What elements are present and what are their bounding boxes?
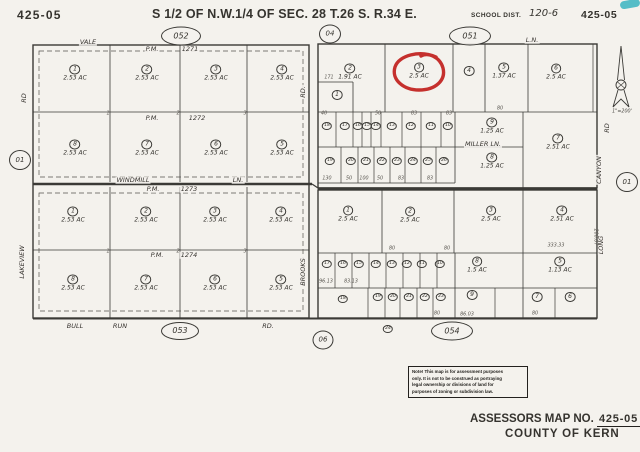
parcel-rb-13: 13 <box>387 260 397 268</box>
parcel-number: 6 <box>210 274 221 284</box>
parcel-rt-10: 10 <box>443 122 453 130</box>
parcel-acreage: 2.53 AC <box>269 218 293 224</box>
parcel-rb-5: 51.13 AC <box>548 256 572 273</box>
dimension-label: 200.07 <box>592 229 597 246</box>
note-line: only. It is not to be construed as portr… <box>412 376 524 383</box>
parcel-acreage: 1.5 AC <box>467 268 487 274</box>
ref-circle-051: 051 <box>449 27 491 46</box>
parcel-rb-1: 12.5 AC <box>338 205 358 222</box>
parcel-number: 21 <box>404 293 414 301</box>
parcel-rt-18: 18 <box>322 122 332 130</box>
parcel-number: 19 <box>325 157 335 165</box>
parcel-acreage: 2.5 AC <box>481 217 501 223</box>
parcel-number: 2 <box>142 64 153 74</box>
parcel-number: 2 <box>405 206 416 216</box>
parcel-number: 8 <box>472 256 483 266</box>
dimension-label: 171 <box>324 77 333 82</box>
parcel-lt-7: 72.53 AC <box>135 139 159 156</box>
parcel-number: 1 <box>343 205 354 215</box>
parcel-number: 5 <box>555 256 566 266</box>
parcel-acreage: 2.51 AC <box>546 145 570 151</box>
parcel-rt-1: 1 <box>332 90 343 100</box>
parcel-acreage: 2.53 AC <box>204 151 228 157</box>
dimension-label: 3 <box>243 113 246 118</box>
street-label-pm: P.M. <box>150 252 165 259</box>
parcel-number: 13 <box>387 122 397 130</box>
dimension-label: 83 <box>446 113 452 118</box>
parcel-number: 14 <box>371 122 381 130</box>
parcel-lb-2: 22.53 AC <box>134 206 158 223</box>
parcel-number: 1 <box>68 206 79 216</box>
street-label-rd: RD <box>21 92 28 104</box>
parcel-rb-10: 10 <box>435 260 445 268</box>
street-label-ln: LN. <box>232 177 245 184</box>
ref-circle-06: 06 <box>313 331 334 350</box>
parcel-rt-12: 12 <box>406 122 416 130</box>
parcel-number: 3 <box>414 62 425 72</box>
dimension-label: 83 <box>398 178 404 183</box>
parcel-acreage: 2.53 AC <box>134 218 158 224</box>
parcel-number: 11 <box>426 122 436 130</box>
parcel-acreage: 1.37 AC <box>492 74 516 80</box>
parcel-rt-23: 23 <box>392 157 402 165</box>
parcel-acreage: 1.25 AC <box>480 164 504 170</box>
parcel-acreage: 2.53 AC <box>269 286 293 292</box>
parcel-rt-21: 21 <box>361 157 371 165</box>
parcel-rb-19: 19 <box>373 293 383 301</box>
note-line: Note! This map is for assessment purpose… <box>412 369 524 376</box>
parcel-number: 21 <box>361 157 371 165</box>
parcel-rt-13: 13 <box>387 122 397 130</box>
parcel-number: 5 <box>499 62 510 72</box>
parcel-rt-17: 17 <box>340 122 350 130</box>
parcel-number: 20 <box>346 157 356 165</box>
parcel-rt-3: 32.5 AC <box>409 62 429 79</box>
parcel-number: 23 <box>436 293 446 301</box>
street-label-brooks: BROOKS <box>300 257 307 287</box>
parcel-number: 22 <box>420 293 430 301</box>
parcel-acreage: 2.51 AC <box>550 217 574 223</box>
parcel-rt-5: 51.37 AC <box>492 62 516 79</box>
dimension-label: 50 <box>346 178 352 183</box>
parcel-lb-1: 12.53 AC <box>61 206 85 223</box>
parcel-number: 16 <box>338 260 348 268</box>
parcel-acreage: 2.53 AC <box>63 151 87 157</box>
parcel-rt-20: 20 <box>346 157 356 165</box>
street-label-pm: P.M. <box>145 46 160 53</box>
parcel-lt-8: 82.53 AC <box>63 139 87 156</box>
parcel-rt-2: 21.91 AC <box>338 63 362 80</box>
parcel-lb-7: 72.53 AC <box>134 274 158 291</box>
parcel-acreage: 2.53 AC <box>203 286 227 292</box>
street-label-1273: 1273 <box>180 186 199 193</box>
parcel-rt-9: 91.25 AC <box>480 117 504 134</box>
street-label-windmill: WINDMILL <box>116 177 151 184</box>
parcel-rb-23: 23 <box>436 293 446 301</box>
assessors-map-label: ASSESSORS MAP NO. <box>470 413 594 425</box>
parcel-number: 14 <box>371 260 381 268</box>
parcel-acreage: 2.53 AC <box>63 76 87 82</box>
dimension-label: 83.13 <box>344 281 358 286</box>
parcel-acreage: 2.53 AC <box>134 286 158 292</box>
parcel-rb-8: 81.5 AC <box>467 256 487 273</box>
street-label-long: LONG <box>598 235 605 255</box>
dimension-label: 80 <box>497 108 503 113</box>
parcel-rb-15: 15 <box>354 260 364 268</box>
parcel-lt-4: 42.53 AC <box>270 64 294 81</box>
parcel-number: 4 <box>277 64 288 74</box>
dimension-label: 86.03 <box>460 314 474 319</box>
parcel-acreage: 2.5 AC <box>409 74 429 80</box>
parcel-number: 11 <box>417 260 427 268</box>
dimension-label: 1 <box>106 113 109 118</box>
parcel-number: 18 <box>338 295 348 303</box>
parcel-rt-25: 25 <box>423 157 433 165</box>
dimension-label: 3 <box>243 251 246 256</box>
parcel-number: 10 <box>435 260 445 268</box>
parcel-rb-22: 22 <box>420 293 430 301</box>
street-label-ln: L.N. <box>525 37 540 44</box>
street-label-millerln: MILLER LN. <box>464 141 502 148</box>
parcel-lt-2: 22.53 AC <box>135 64 159 81</box>
parcel-number: 19 <box>373 293 383 301</box>
dimension-label: 80 <box>434 313 440 318</box>
parcel-acreage: 2.53 AC <box>135 76 159 82</box>
parcel-acreage: 2.53 AC <box>61 286 85 292</box>
parcel-lb-5: 52.53 AC <box>269 274 293 291</box>
parcel-number: 17 <box>322 260 332 268</box>
dimension-label: 80 <box>444 248 450 253</box>
street-label-rd: RD <box>604 122 611 134</box>
parcel-number: 1 <box>70 64 81 74</box>
dimension-label: 2 <box>176 113 179 118</box>
parcel-acreage: 2.5 AC <box>400 218 420 224</box>
street-label-pm: P.M. <box>146 186 161 193</box>
parcel-number: 5 <box>276 274 287 284</box>
parcel-rb-4: 42.51 AC <box>550 205 574 222</box>
street-label-1274: 1274 <box>180 252 199 259</box>
parcel-number: 10 <box>443 122 453 130</box>
street-label-canyon: CANYON <box>596 155 603 185</box>
dimension-label: 96.13 <box>319 281 333 286</box>
parcel-rt-24: 24 <box>408 157 418 165</box>
parcel-number: 24 <box>408 157 418 165</box>
dimension-label: 333.33 <box>548 245 565 250</box>
parcel-number: 15 <box>354 260 364 268</box>
map-labels-layer: 05204051010105306054VALEP.M.1271P.M.1272… <box>0 0 640 452</box>
dimension-label: 40 <box>321 113 327 118</box>
parcel-number: 6 <box>565 292 576 302</box>
parcel-number: 4 <box>557 205 568 215</box>
street-label-pm: P.M. <box>145 115 160 122</box>
parcel-number: 2 <box>345 63 356 73</box>
ref-circle-054: 054 <box>431 322 473 341</box>
ref-circle-01: 01 <box>9 150 31 170</box>
parcel-number: 2 <box>141 206 152 216</box>
parcel-lb-4: 42.53 AC <box>269 206 293 223</box>
parcel-lb-8: 82.53 AC <box>61 274 85 291</box>
parcel-number: 4 <box>276 206 287 216</box>
parcel-number: 13 <box>387 260 397 268</box>
parcel-lt-1: 12.53 AC <box>63 64 87 81</box>
parcel-acreage: 2.53 AC <box>61 218 85 224</box>
parcel-rb-12: 12 <box>402 260 412 268</box>
parcel-rb-24: 24 <box>383 325 393 333</box>
assessor-map-scan: 425-05 S 1/2 OF N.W.1/4 OF SEC. 28 T.26 … <box>0 0 640 452</box>
parcel-rt-22: 22 <box>377 157 387 165</box>
parcel-rb-9: 9 <box>467 290 478 300</box>
parcel-number: 7 <box>553 133 564 143</box>
street-label-vale: VALE <box>79 39 97 46</box>
parcel-acreage: 1.13 AC <box>548 268 572 274</box>
county-label: COUNTY OF KERN <box>505 428 620 440</box>
parcel-number: 9 <box>487 117 498 127</box>
parcel-rb-14: 14 <box>371 260 381 268</box>
dimension-label: 50 <box>375 113 381 118</box>
dimension-label: 80 <box>532 313 538 318</box>
parcel-acreage: 2.53 AC <box>203 218 227 224</box>
note-box: Note! This map is for assessment purpose… <box>408 366 528 398</box>
parcel-number: 12 <box>406 122 416 130</box>
parcel-lb-6: 62.53 AC <box>203 274 227 291</box>
parcel-number: 6 <box>211 139 222 149</box>
parcel-rt-11: 11 <box>426 122 436 130</box>
street-label-1272: 1272 <box>188 115 207 122</box>
parcel-number: 18 <box>322 122 332 130</box>
dimension-label: 83 <box>411 113 417 118</box>
street-label-rd: RD. <box>261 323 275 330</box>
parcel-acreage: 2.53 AC <box>135 151 159 157</box>
parcel-acreage: 2.53 AC <box>270 76 294 82</box>
parcel-rb-20: 20 <box>388 293 398 301</box>
parcel-number: 8 <box>70 139 81 149</box>
dimension-label: 100 <box>359 178 368 183</box>
parcel-number: 8 <box>487 152 498 162</box>
parcel-rb-6: 6 <box>565 292 576 302</box>
parcel-rb-7: 7 <box>532 292 543 302</box>
parcel-rt-7: 72.51 AC <box>546 133 570 150</box>
parcel-number: 17 <box>340 122 350 130</box>
parcel-number: 7 <box>142 139 153 149</box>
parcel-rb-21: 21 <box>404 293 414 301</box>
parcel-number: 23 <box>392 157 402 165</box>
parcel-acreage: 1.91 AC <box>338 75 362 81</box>
parcel-acreage: 2.5 AC <box>546 75 566 81</box>
ref-circle-052: 052 <box>161 27 201 46</box>
parcel-number: 7 <box>141 274 152 284</box>
parcel-number: 3 <box>486 205 497 215</box>
ref-circle-04: 04 <box>319 25 341 44</box>
parcel-rt-19: 19 <box>325 157 335 165</box>
note-line: legal ownership or divisions of land for <box>412 382 524 389</box>
parcel-number: 6 <box>551 63 562 73</box>
parcel-lb-3: 32.53 AC <box>203 206 227 223</box>
street-label-1271: 1271 <box>181 46 200 53</box>
street-label-lakeview: LAKEVIEW <box>19 244 26 279</box>
parcel-rb-16: 16 <box>338 260 348 268</box>
parcel-number: 3 <box>210 206 221 216</box>
parcel-number: 24 <box>383 325 393 333</box>
parcel-rt-8: 81.25 AC <box>480 152 504 169</box>
ref-circle-053: 053 <box>161 322 199 340</box>
parcel-acreage: 1.25 AC <box>480 129 504 135</box>
parcel-number: 22 <box>377 157 387 165</box>
parcel-lt-3: 32.53 AC <box>204 64 228 81</box>
parcel-acreage: 2.53 AC <box>204 76 228 82</box>
parcel-rt-4: 4 <box>464 66 475 76</box>
parcel-lt-6: 62.53 AC <box>204 139 228 156</box>
ref-circle-01: 01 <box>616 172 638 192</box>
parcel-number: 1 <box>332 90 343 100</box>
parcel-number: 26 <box>439 157 449 165</box>
parcel-rb-17: 17 <box>322 260 332 268</box>
dimension-label: 1 <box>106 251 109 256</box>
street-label-bull: BULL <box>66 323 84 330</box>
parcel-acreage: 2.5 AC <box>338 217 358 223</box>
parcel-number: 9 <box>467 290 478 300</box>
parcel-rb-11: 11 <box>417 260 427 268</box>
assessors-map-number: 425-05 <box>597 413 640 427</box>
parcel-acreage: 2.53 AC <box>270 151 294 157</box>
street-label-run: RUN <box>112 323 128 330</box>
parcel-number: 12 <box>402 260 412 268</box>
street-label-rd: RD. <box>300 85 307 99</box>
parcel-number: 4 <box>464 66 475 76</box>
parcel-rt-6: 62.5 AC <box>546 63 566 80</box>
dimension-label: 80 <box>389 248 395 253</box>
parcel-number: 20 <box>388 293 398 301</box>
parcel-number: 3 <box>211 64 222 74</box>
parcel-rt-14: 14 <box>371 122 381 130</box>
parcel-number: 5 <box>277 139 288 149</box>
parcel-rt-26: 26 <box>439 157 449 165</box>
assessors-map-line: ASSESSORS MAP NO. 425-05 <box>470 413 640 425</box>
scale-label: 1"=200' <box>612 110 632 115</box>
parcel-rb-3: 32.5 AC <box>481 205 501 222</box>
dimension-label: 130 <box>322 178 331 183</box>
parcel-lt-5: 52.53 AC <box>270 139 294 156</box>
note-line: purposes of zoning or subdivision law. <box>412 389 524 396</box>
parcel-number: 25 <box>423 157 433 165</box>
dimension-label: 83 <box>427 178 433 183</box>
parcel-rb-18: 18 <box>338 295 348 303</box>
dimension-label: 2 <box>176 251 179 256</box>
dimension-label: 50 <box>377 178 383 183</box>
parcel-rb-2: 22.5 AC <box>400 206 420 223</box>
parcel-number: 7 <box>532 292 543 302</box>
parcel-number: 8 <box>68 274 79 284</box>
